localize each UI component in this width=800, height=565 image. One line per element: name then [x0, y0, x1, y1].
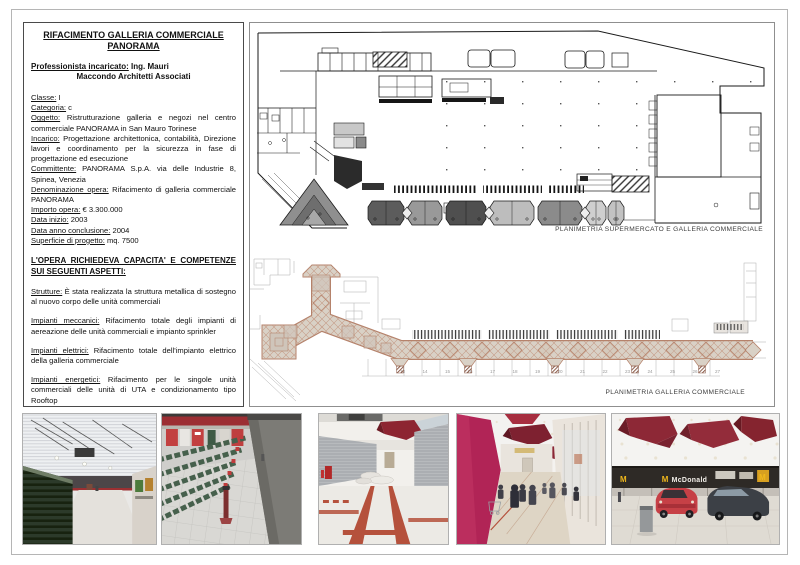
info-fields: Classe: ICategoria: cOggetto: Ristruttur… — [31, 93, 236, 246]
mcdonalds-sign-text: McDonald — [672, 477, 708, 484]
info-field: Importo opera: € 3.300.000 — [31, 205, 236, 215]
svg-text:17: 17 — [490, 369, 496, 374]
professional-firm: Maccondo Architetti Associati — [31, 72, 236, 82]
supermarket-plan-details — [330, 53, 751, 225]
gallery-plan-shop-walls — [362, 359, 720, 376]
svg-text:26: 26 — [693, 369, 699, 374]
svg-text:18: 18 — [513, 369, 519, 374]
supermarket-aisle-photo — [22, 413, 157, 545]
info-aspect: Strutture: È stata realizzata la struttu… — [31, 287, 236, 307]
red-display-car — [656, 488, 698, 518]
project-info-panel: RIFACIMENTO GALLERIA COMMERCIALE PANORAM… — [23, 22, 244, 407]
info-field: Classe: I — [31, 93, 236, 103]
floor-plans-drawing: 131415161718192021222324252627 — [250, 23, 774, 406]
page-title: RIFACIMENTO GALLERIA COMMERCIALE PANORAM… — [31, 30, 236, 52]
title-line1: RIFACIMENTO GALLERIA COMMERCIALE — [43, 30, 224, 40]
mcdonalds-logo-icon: M — [620, 475, 627, 484]
info-field: Data anno conclusione: 2004 — [31, 226, 236, 236]
info-field: Oggetto: Ristrutturazione galleria e neg… — [31, 113, 236, 133]
info-aspect: Impianti elettrici: Rifacimento totale d… — [31, 346, 236, 366]
info-field: Denominazione opera: Rifacimento di gall… — [31, 185, 236, 205]
svg-text:23: 23 — [625, 369, 631, 374]
mcdonalds-court-photo: M M McDonald M — [611, 413, 780, 545]
svg-text:25: 25 — [670, 369, 676, 374]
mcdonalds-court-image: M M McDonald M — [612, 414, 779, 544]
gallery-finished-photo — [456, 413, 606, 545]
svg-text:19: 19 — [535, 369, 541, 374]
section-heading: L'OPERA RICHIEDEVA CAPACITA' E COMPETENZ… — [31, 256, 236, 277]
info-field: Incarico: Progettazione architettonica, … — [31, 134, 236, 165]
supermarket-plan-caption: PLANIMETRIA SUPERMERCATO E GALLERIA COMM… — [555, 226, 763, 233]
svg-text:22: 22 — [603, 369, 609, 374]
info-aspects: Strutture: È stata realizzata la struttu… — [31, 287, 236, 406]
svg-text:27: 27 — [715, 369, 721, 374]
checkout-area-photo — [161, 413, 302, 545]
professional-block: Professionista incaricato: Ing. Mauri Ma… — [31, 62, 236, 82]
supermarket-aisle-image — [23, 414, 156, 544]
plans-panel: 131415161718192021222324252627 — [249, 22, 775, 407]
supermarket-plan — [257, 31, 764, 228]
info-field: Superficie di progetto: mq. 7500 — [31, 236, 236, 246]
mcdonalds-logo-icon: M — [759, 473, 766, 482]
info-field: Categoria: c — [31, 103, 236, 113]
gallery-construction-image — [319, 414, 448, 544]
mcdonalds-logo-icon: M — [662, 475, 669, 484]
svg-text:15: 15 — [445, 369, 451, 374]
info-aspect: Impianti energetici: Rifacimento per le … — [31, 375, 236, 406]
info-field: Data inizio: 2003 — [31, 215, 236, 225]
svg-text:24: 24 — [648, 369, 654, 374]
svg-text:14: 14 — [423, 369, 429, 374]
checkout-area-image — [162, 414, 301, 544]
gallery-unit-numbers: 131415161718192021222324252627 — [400, 369, 721, 374]
gallery-construction-photo — [318, 413, 449, 545]
info-field: Committente: PANORAMA S.p.A. via delle I… — [31, 164, 236, 184]
professional-value: Ing. Mauri — [131, 62, 169, 71]
gallery-plan-caption: PLANIMETRIA GALLERIA COMMERCIALE — [606, 389, 745, 396]
info-aspect: Impianti meccanici: Rifacimento totale d… — [31, 316, 236, 336]
title-line2: PANORAMA — [107, 41, 159, 51]
svg-text:21: 21 — [580, 369, 586, 374]
professional-label: Professionista incaricato: — [31, 62, 129, 71]
gallery-finished-image — [457, 414, 605, 544]
